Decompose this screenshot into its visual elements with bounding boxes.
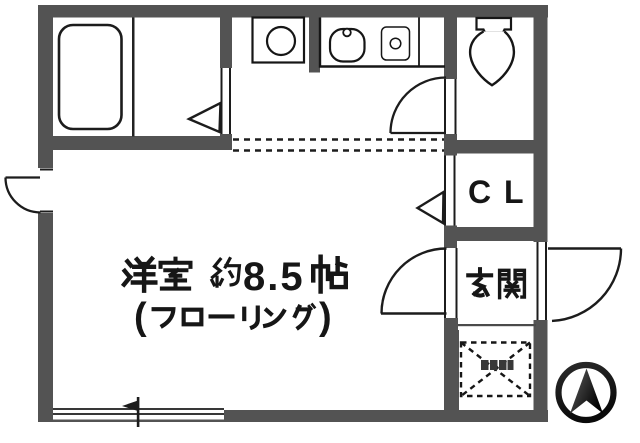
svg-text:C: C: [468, 174, 491, 210]
svg-text:8.5: 8.5: [243, 255, 305, 299]
svg-text:L: L: [504, 174, 524, 210]
svg-text:(: (: [134, 296, 147, 338]
svg-text:): ): [319, 296, 332, 338]
